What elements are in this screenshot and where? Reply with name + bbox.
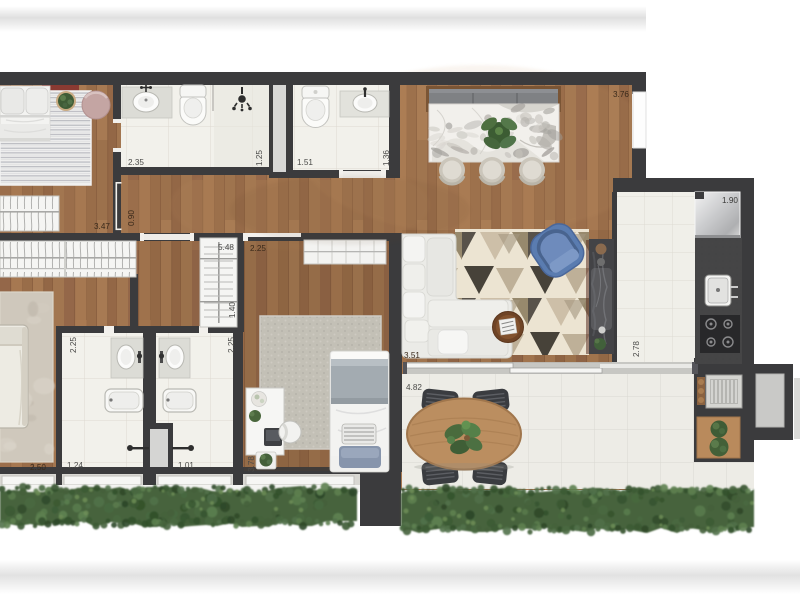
svg-text:0.90: 0.90: [127, 210, 136, 226]
svg-text:5.48: 5.48: [218, 243, 234, 252]
svg-text:2.35: 2.35: [128, 158, 144, 167]
svg-text:1.40: 1.40: [228, 302, 237, 318]
svg-text:3.47: 3.47: [94, 222, 110, 231]
svg-text:3.76: 3.76: [613, 90, 629, 99]
svg-text:1.25: 1.25: [255, 150, 264, 166]
svg-text:3.51: 3.51: [404, 351, 420, 360]
svg-text:3.78: 3.78: [247, 456, 256, 472]
svg-text:1.51: 1.51: [297, 158, 313, 167]
svg-text:2.78: 2.78: [632, 341, 641, 357]
svg-text:2.25: 2.25: [227, 337, 236, 353]
svg-text:4.82: 4.82: [406, 383, 422, 392]
svg-text:1.01: 1.01: [178, 461, 194, 470]
svg-text:1.36: 1.36: [382, 150, 391, 166]
svg-text:2.50: 2.50: [30, 463, 46, 472]
svg-text:1.24: 1.24: [67, 461, 83, 470]
svg-text:1.90: 1.90: [722, 196, 738, 205]
svg-text:2.25: 2.25: [69, 337, 78, 353]
svg-text:2.25: 2.25: [250, 244, 266, 253]
